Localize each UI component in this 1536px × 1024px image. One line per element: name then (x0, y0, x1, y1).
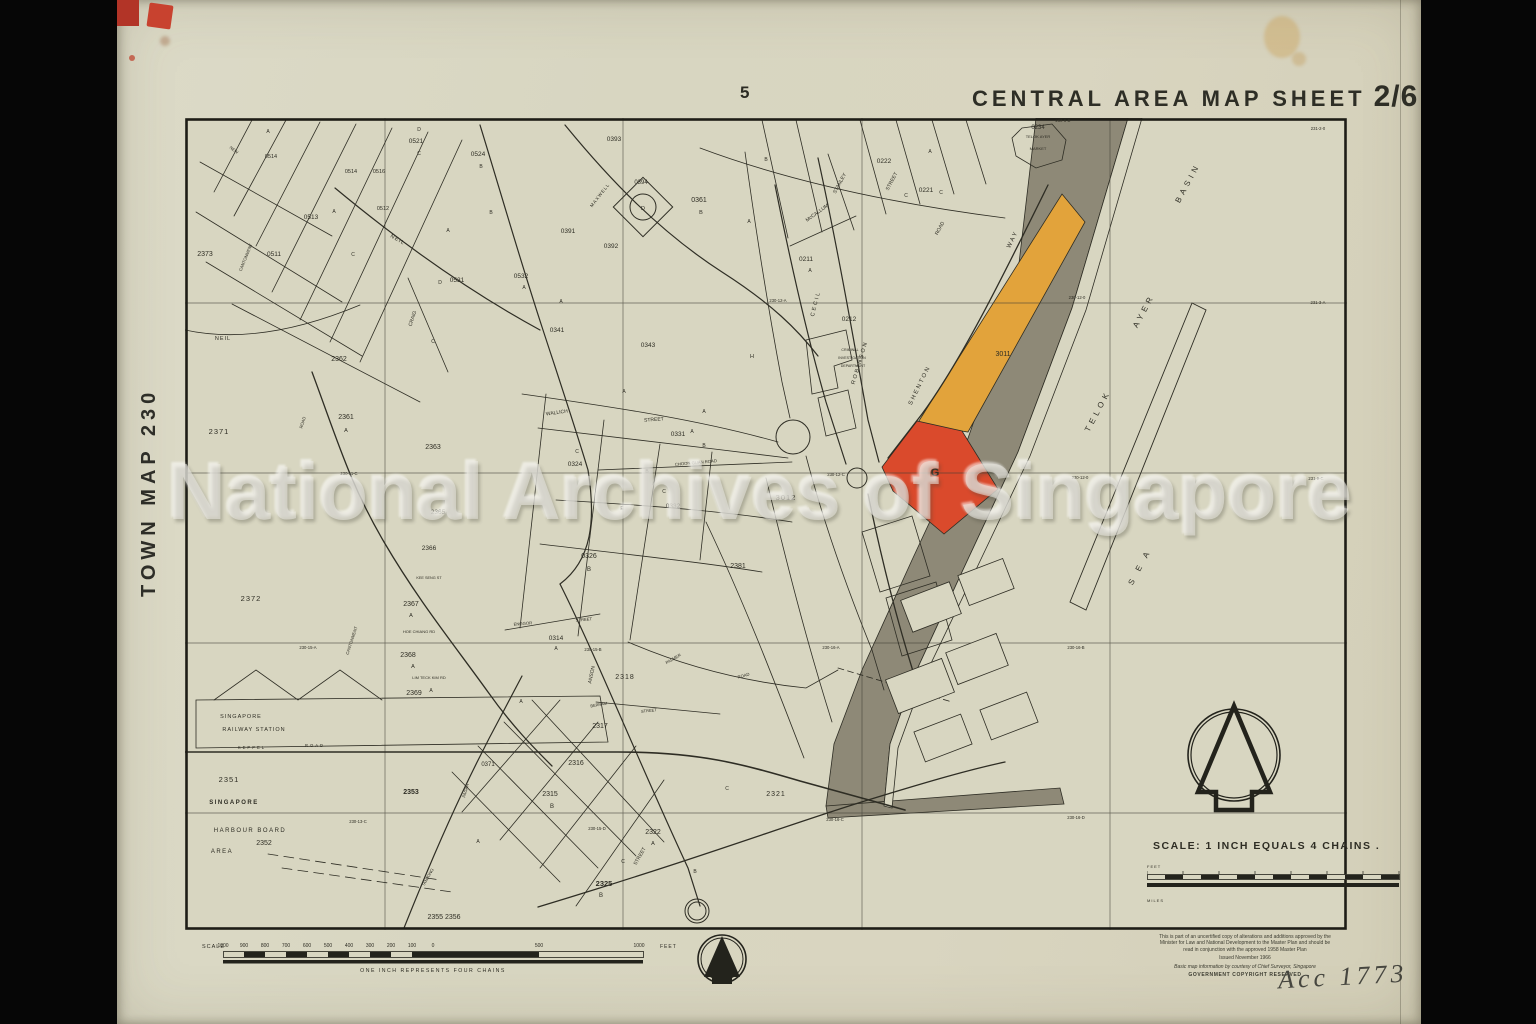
map-label: 0212 (842, 316, 857, 323)
map-label: 231-2-0 (1311, 126, 1326, 131)
map-label: 0222 (877, 158, 892, 165)
map-label: SINGAPORE (209, 800, 259, 806)
map-label: TELOK AYER (1026, 134, 1051, 139)
map-label: 230-12-0 (1069, 295, 1086, 300)
map-label: MARKET (1030, 146, 1047, 151)
map-label: 2315 (542, 791, 558, 798)
map-label: 2369 (406, 690, 422, 697)
map-label: ROAD (305, 743, 325, 748)
map-label: 0513 (304, 214, 319, 221)
map-label: C (575, 449, 579, 455)
scale-tick: 400 (345, 943, 353, 949)
map-label: 2351 (219, 775, 240, 784)
map-label: 0234 (1031, 125, 1045, 131)
map-label: 0361 (691, 197, 707, 204)
map-label: 0514 (265, 154, 277, 160)
map-label: A (651, 841, 655, 847)
map-label: D (417, 127, 421, 133)
map-label: 0211 (799, 256, 813, 263)
map-label: 2322 (645, 829, 661, 836)
map-label: LIM TECK KIM RD (412, 675, 446, 680)
map-label: D (641, 206, 645, 212)
bottom-scale-bar: SCALE 1000900800700600500400300200100050… (198, 941, 698, 981)
sheet-number: 2/6 (1374, 80, 1419, 113)
map-label: 0531 (450, 277, 465, 284)
scale-ticks: 100090080070060050040030020010005001000 (223, 943, 683, 951)
map-label: B (699, 210, 703, 216)
map-label: 3012 (776, 493, 797, 502)
right-scale-block: SCALE: 1 INCH EQUALS 4 CHAINS . FEET MIL… (1145, 836, 1407, 912)
map-label: 2371 (209, 427, 230, 436)
map-label: 230-12-0 (1072, 475, 1089, 480)
scale-feet-label: FEET (1147, 864, 1161, 869)
map-label: B (587, 567, 591, 573)
map-label: C (351, 252, 355, 258)
map-background (185, 118, 1347, 930)
scale-tick: 900 (240, 943, 248, 949)
map-label: C (904, 193, 908, 199)
sheet-title: CENTRAL AREA MAP SHEET2/6 (972, 80, 1418, 114)
map-label: 230-15-A (299, 645, 316, 650)
map-label: 2321 (766, 791, 786, 798)
scale-caption: ONE INCH REPRESENTS FOUR CHAINS (223, 968, 643, 974)
map-label: HOE CHIANG RD (403, 629, 435, 634)
map-label: 0521 (409, 138, 424, 145)
scale-tick: 500 (324, 943, 332, 949)
map-label: 0391 (561, 228, 576, 235)
scale-tick: 0 (432, 943, 435, 949)
red-speck (129, 55, 135, 61)
map-canvas: 0234TELOK AYERMARKET230-6-DBASINAYERTELO… (185, 118, 1347, 930)
map-label: 0514 (345, 169, 357, 175)
map-label: NEIL (215, 336, 231, 342)
map-label: A (409, 613, 413, 619)
map-label: 2366 (422, 545, 437, 552)
map-label: 2365 (431, 509, 446, 516)
map-label: 0371 (481, 762, 495, 768)
map-label: 2355 2356 (427, 914, 460, 921)
map-label: C (621, 859, 625, 865)
map-label: 2362 (331, 356, 347, 363)
map-label: 230-15-B (584, 647, 601, 652)
scale-tick: 500 (535, 943, 543, 949)
stain-spot (1292, 52, 1306, 66)
scale-bar-graphic (223, 951, 648, 965)
map-label: 2352 (256, 840, 272, 847)
map-label: KEE SENG ST (416, 576, 442, 580)
map-label: AREA (211, 849, 233, 855)
map-label: 0341 (550, 327, 565, 334)
map-label: SINGAPORE (220, 714, 262, 720)
stain-spot (1264, 16, 1300, 58)
map-label: 0512 (377, 206, 389, 212)
map-label: 0331 (671, 431, 686, 438)
map-label: 3011 (995, 351, 1010, 358)
map-label: 2316 (568, 760, 584, 767)
map-label: 0516 (373, 169, 385, 175)
red-tape-mark (146, 2, 173, 29)
map-label: 230-12-C (827, 472, 844, 477)
map-label: KEPPEL (238, 745, 266, 750)
map-label: B (599, 893, 603, 899)
map-label: INVESTIGATION (838, 356, 866, 360)
scale-tick: 600 (303, 943, 311, 949)
scale-tick: 100 (408, 943, 416, 949)
note-line: read in conjunction with the approved 19… (1146, 947, 1344, 953)
map-label: 2361 (338, 414, 354, 421)
map-label: 0326 (581, 553, 597, 560)
map-label: 230-16-B (1067, 645, 1084, 650)
map-label: 0532 (514, 273, 529, 280)
map-label: RAILWAY STATION (222, 727, 285, 733)
map-label: 2372 (241, 594, 262, 603)
page-number: 5 (740, 83, 750, 103)
sheet-title-text: CENTRAL AREA MAP SHEET (972, 86, 1366, 111)
stain-spot (160, 36, 170, 46)
map-label: 0393 (607, 136, 622, 143)
map-label: 230-13-C (349, 819, 366, 824)
map-label: 230-16-C (826, 817, 843, 822)
map-label: 2381 (730, 563, 746, 570)
map-label: 231-9-C (1308, 476, 1323, 481)
map-label: 0394 (634, 180, 648, 186)
scale-miles-label: MILES (1147, 898, 1164, 903)
scale-heading: SCALE: 1 INCH EQUALS 4 CHAINS . (1153, 840, 1380, 852)
map-label: 231-3-A (1311, 300, 1326, 305)
map-label: 2318 (615, 674, 635, 681)
map-label: 230-12-A (769, 298, 786, 303)
map-label: C (939, 190, 943, 196)
map-label: 2317 (592, 723, 608, 730)
map-label: 0332 (666, 503, 681, 510)
map-label: 0221 (919, 187, 934, 194)
scale-tick: 1000 (633, 943, 644, 949)
map-label: 0392 (604, 243, 619, 250)
map-label: 2353 (403, 789, 419, 796)
map-label: CRIMINAL (841, 348, 858, 352)
map-label: 0314 (549, 635, 564, 642)
map-label: 0324 (568, 461, 583, 468)
scale-tick: 300 (366, 943, 374, 949)
scan-stage: 5 CENTRAL AREA MAP SHEET2/6 TOWN MAP 230 (0, 0, 1536, 1024)
map-label: 230-11-C (340, 471, 357, 476)
map-label: HARBOUR BOARD (214, 828, 287, 834)
map-label: 230-16-D (1067, 815, 1084, 820)
map-label: 2368 (400, 652, 416, 659)
map-label: C (662, 489, 666, 495)
paper-fold-line (1400, 0, 1401, 1024)
map-label: 0511 (267, 251, 281, 258)
map-label: 230-16-A (822, 645, 839, 650)
scale-tick: 700 (282, 943, 290, 949)
map-label: 0343 (641, 342, 656, 349)
map-label: H (750, 354, 754, 360)
town-map-side-label: TOWN MAP 230 (138, 397, 166, 597)
map-label: D (438, 280, 442, 286)
issued-line: Issued November 1966 (1146, 955, 1344, 961)
scale-tick: 200 (387, 943, 395, 949)
right-scale-bar-graphic (1147, 870, 1405, 892)
map-label: 0524 (471, 151, 486, 158)
scale-tick: 800 (261, 943, 269, 949)
note-line: Minister for Law and National Developmen… (1146, 940, 1344, 946)
map-label: G (931, 467, 940, 479)
map-label: DEPARTMENT (841, 364, 866, 368)
map-label: C (431, 339, 435, 345)
map-label: 2363 (425, 444, 441, 451)
scale-unit: FEET (660, 944, 677, 950)
map-label: 2325 (596, 879, 613, 888)
map-label: 2367 (403, 601, 419, 608)
scale-tick: 1000 (217, 943, 228, 949)
map-label: C (417, 151, 421, 157)
map-label: 2373 (197, 251, 213, 258)
red-tape-mark (117, 0, 139, 26)
map-label: 230-15-D (588, 826, 605, 831)
map-label: A (411, 664, 415, 670)
compass-icon (694, 928, 750, 990)
map-label: A (344, 428, 348, 434)
map-label: 230-6-D (1055, 118, 1070, 123)
map-label: B (550, 804, 554, 810)
map-label: C (725, 786, 729, 792)
